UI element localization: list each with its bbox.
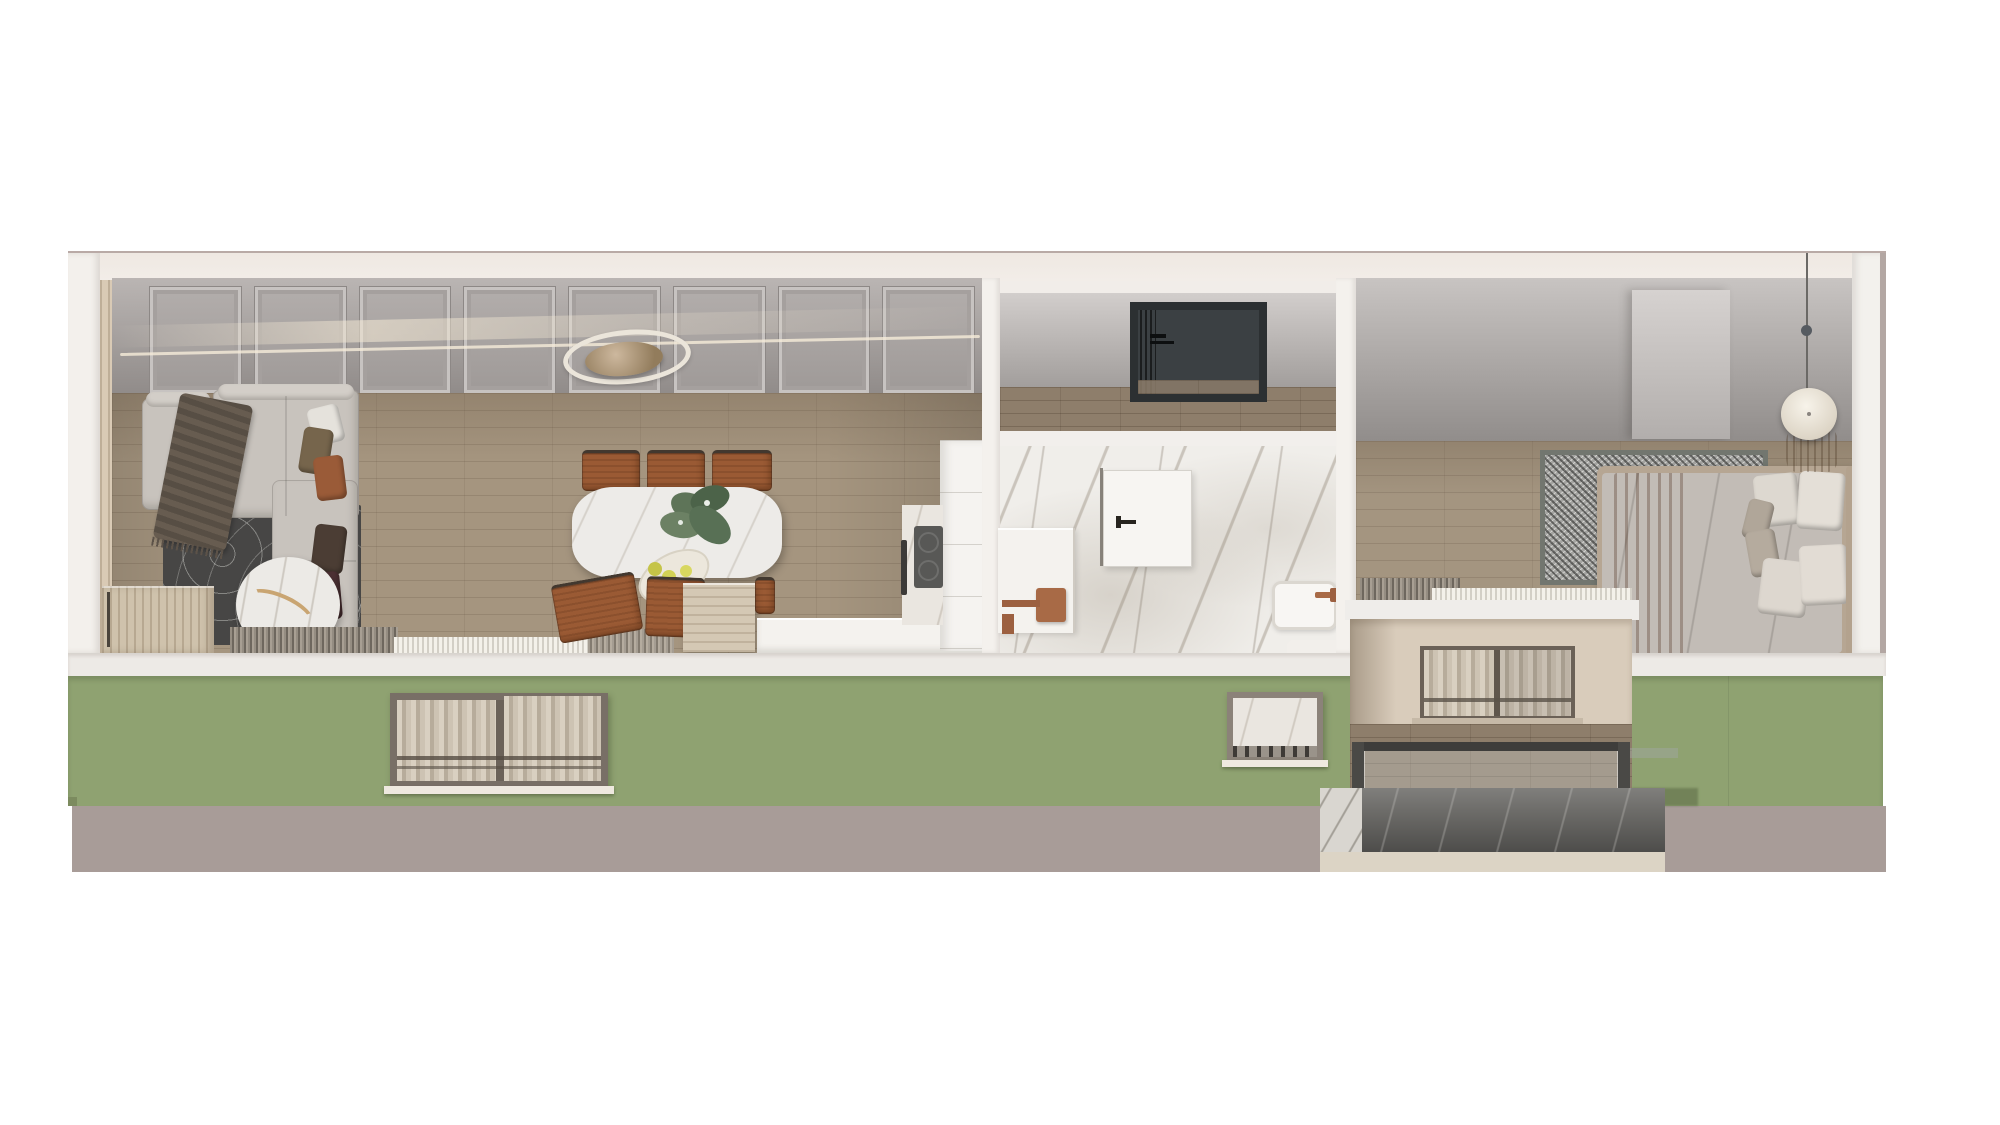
bed-pillow: [1796, 470, 1846, 531]
wood-sideboard-left: [102, 586, 214, 653]
facade-corner-shadow: [68, 797, 77, 806]
living-room-facade-window: [390, 693, 608, 788]
bedroom: [1356, 278, 1852, 653]
shower-copper-riser: [1002, 614, 1014, 634]
bed-pillow: [1798, 544, 1849, 606]
entry-niche: [1130, 302, 1267, 402]
ceiling-cut-strip: [68, 253, 1886, 281]
dining-chair: [755, 577, 775, 614]
sofa-seam: [285, 396, 287, 516]
window-sill: [384, 786, 614, 794]
left-outer-wall: [68, 253, 100, 653]
door-rail: [1424, 698, 1571, 702]
stone-white-marble-corner: [1320, 788, 1362, 852]
right-wall-edge: [1880, 253, 1886, 653]
cooktop: [914, 526, 943, 588]
pendant-stem-dot: [1807, 412, 1811, 416]
burner: [918, 560, 939, 581]
window-sill: [1222, 760, 1328, 767]
bathroom: [1000, 446, 1345, 653]
pendant-sphere: [1801, 325, 1812, 336]
balcony-slab-patch: [1345, 600, 1639, 620]
bathroom-facade-window: [1227, 692, 1323, 763]
balcony-plinth: [1320, 852, 1665, 872]
apple: [648, 562, 662, 576]
sofa-cushion-rust: [312, 454, 347, 501]
bathroom-basin: [1272, 581, 1337, 630]
bedroom-wall: [1356, 278, 1852, 441]
window-bottom-rail: [1233, 746, 1317, 757]
pendant-cord: [1806, 253, 1808, 393]
window-rail: [397, 766, 601, 769]
living-dining-room: [112, 278, 982, 653]
wall-pillar: [1336, 278, 1356, 653]
balcony-stone-base: [1320, 788, 1665, 852]
plant-flower: [678, 520, 683, 525]
shower-copper-arm: [1002, 600, 1040, 607]
bedroom-partition-panel: [1632, 290, 1730, 439]
window-rail: [397, 756, 601, 760]
facade-seam: [1728, 676, 1729, 806]
railing-side-glass: [1630, 748, 1678, 758]
right-outer-wall: [1852, 253, 1880, 653]
shower-copper-head: [1036, 588, 1066, 622]
curtain-gray-left: [230, 627, 398, 654]
railing-top-bar: [1352, 742, 1630, 751]
apartment-render-canvas: [0, 0, 2000, 1125]
dining-chair: [582, 450, 640, 491]
niche-floor: [1138, 380, 1259, 394]
door-pane-right: [1500, 650, 1571, 716]
oven-handle: [901, 540, 907, 595]
hallway: [1000, 293, 1336, 653]
niche-handle: [1150, 341, 1174, 344]
pendant-disc-lamp: [1781, 388, 1837, 440]
wood-console: [683, 583, 755, 652]
bathroom-wall-top: [1000, 431, 1345, 446]
sideboard-handle: [107, 592, 110, 647]
apple: [680, 565, 692, 577]
wall-panel: [464, 287, 555, 393]
door-handle-rose: [1116, 516, 1121, 528]
niche-handle: [1150, 334, 1166, 338]
window-interior-marble: [1233, 698, 1317, 746]
balcony-sliding-door: [1420, 646, 1575, 720]
wall-panel: [883, 287, 974, 393]
plant-flower: [704, 500, 710, 506]
door-pane-left: [1424, 650, 1494, 716]
burner: [918, 532, 939, 553]
bathroom-door: [1103, 470, 1192, 567]
